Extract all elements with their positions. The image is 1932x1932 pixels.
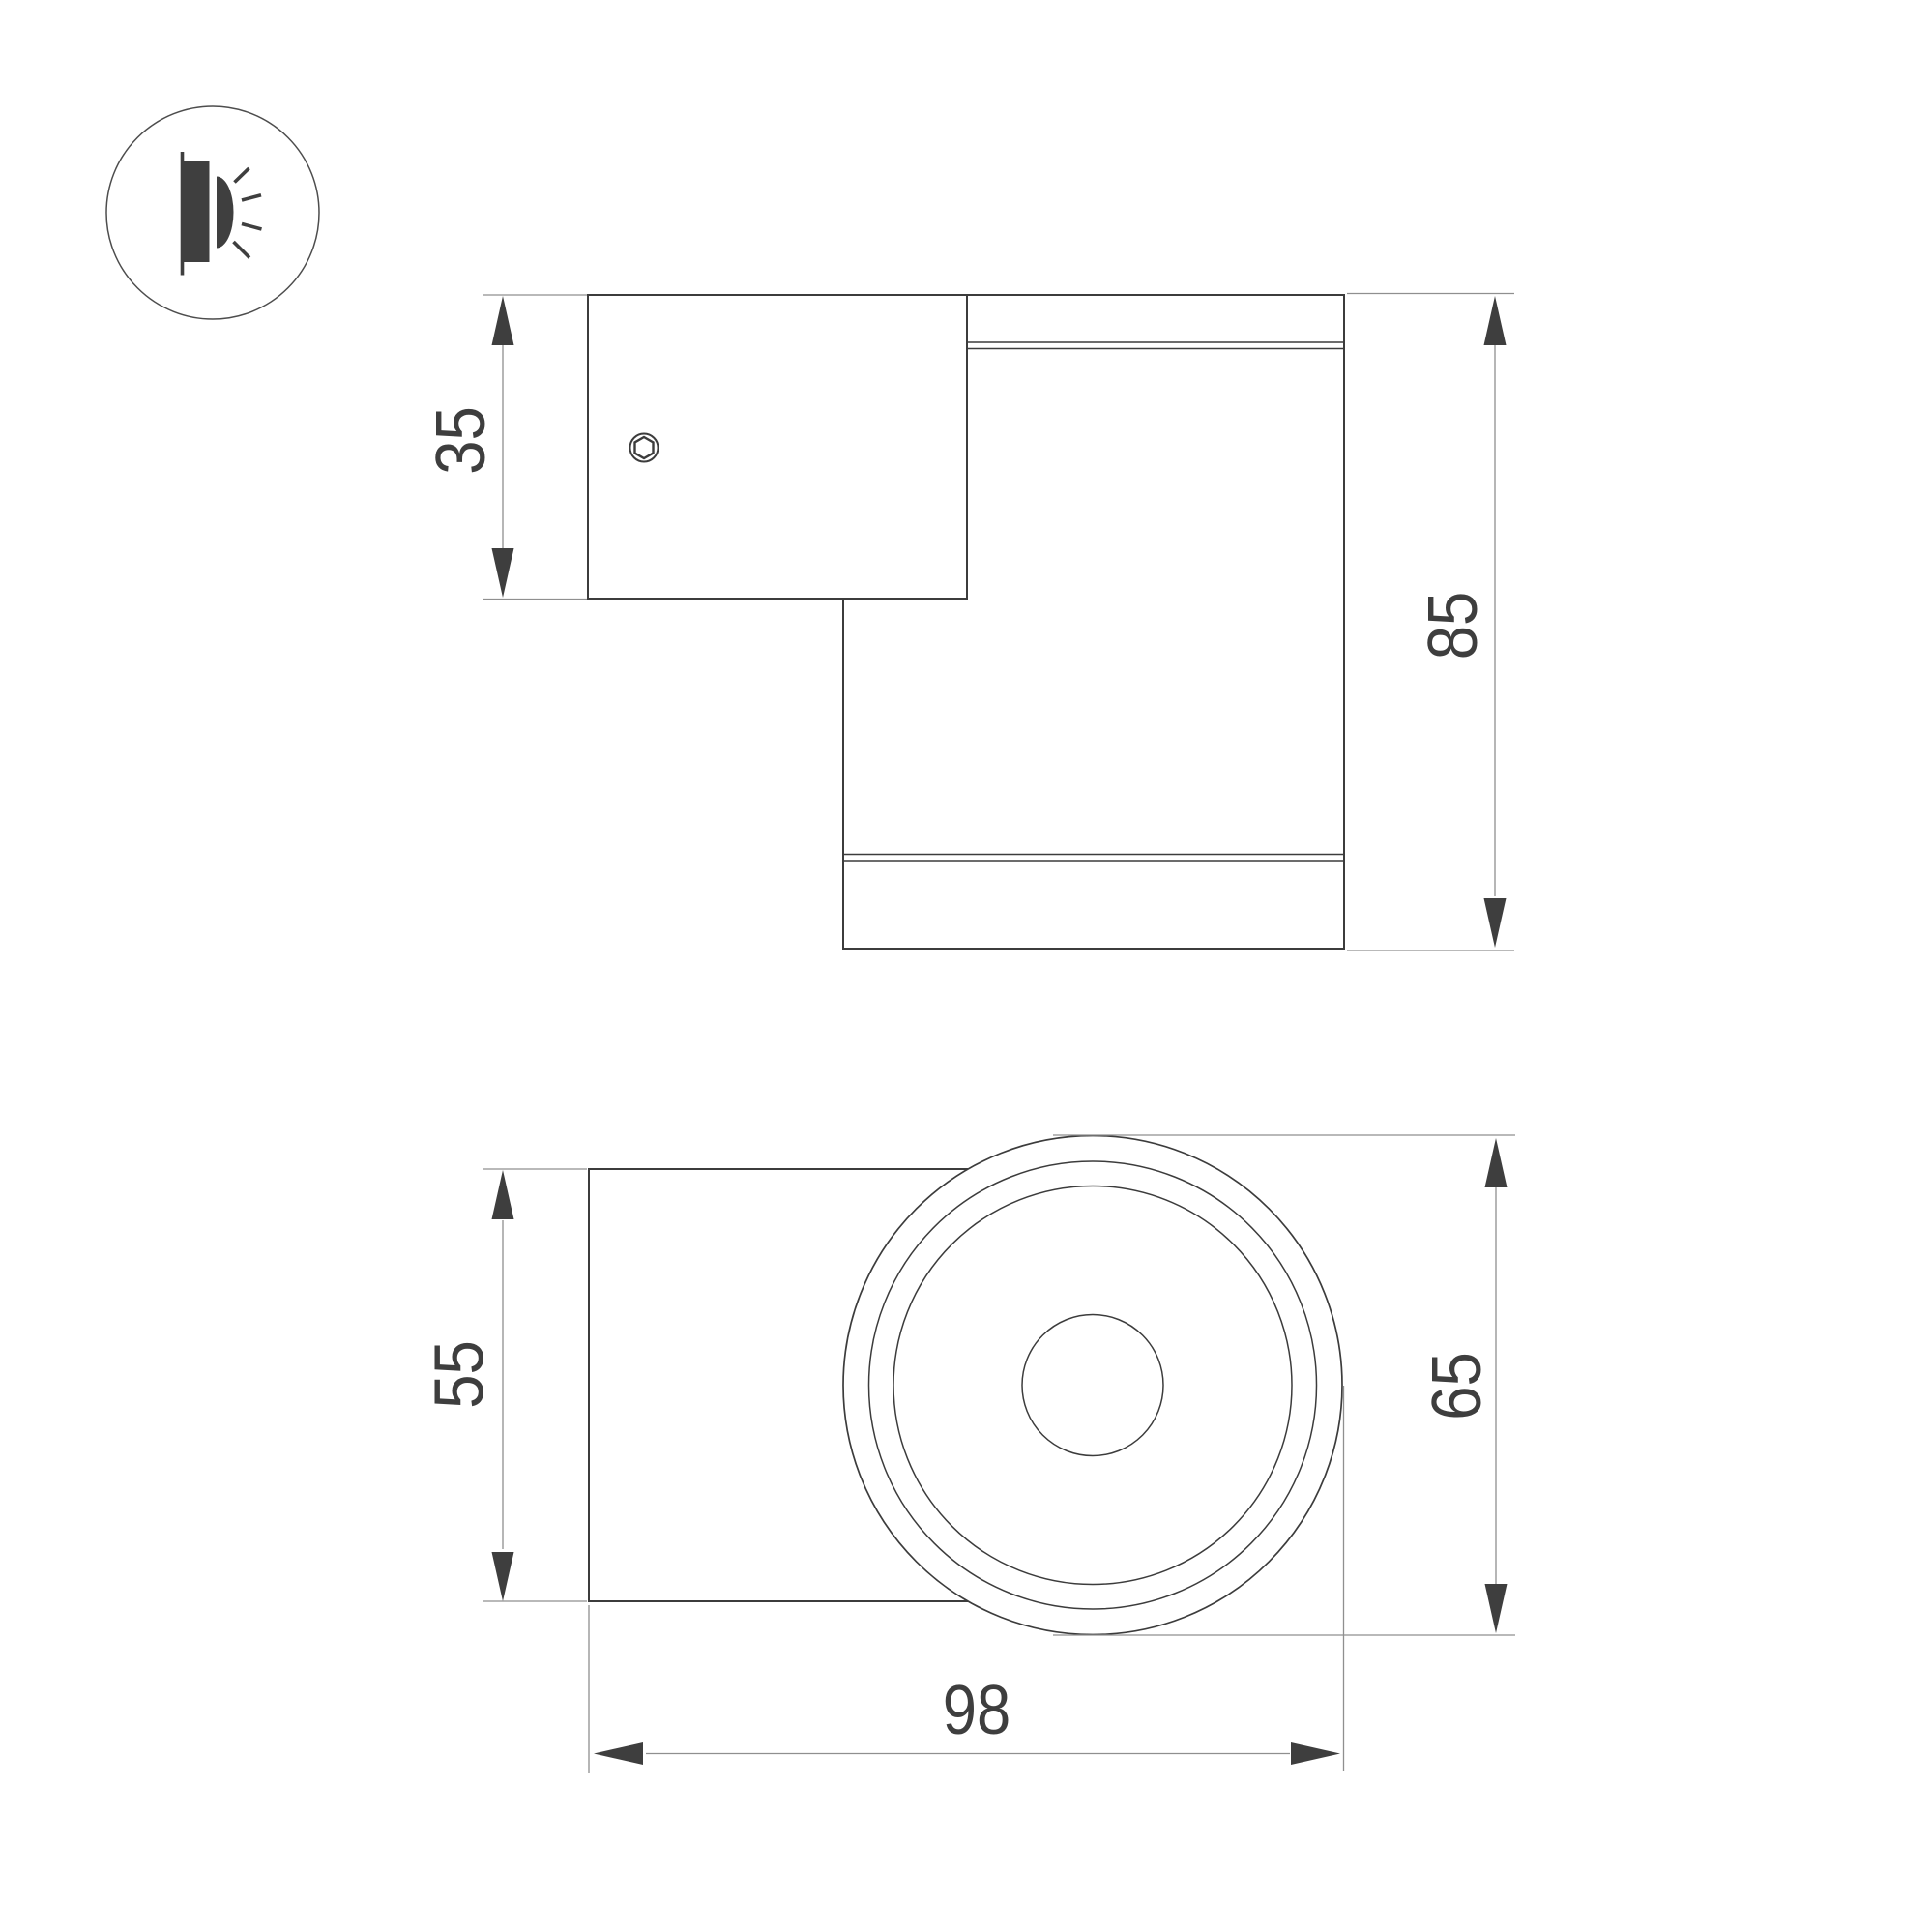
svg-text:98: 98 xyxy=(943,1672,1010,1749)
svg-text:35: 35 xyxy=(423,406,500,474)
svg-text:65: 65 xyxy=(1419,1352,1496,1420)
svg-text:85: 85 xyxy=(1415,592,1492,659)
svg-text:55: 55 xyxy=(422,1340,499,1408)
